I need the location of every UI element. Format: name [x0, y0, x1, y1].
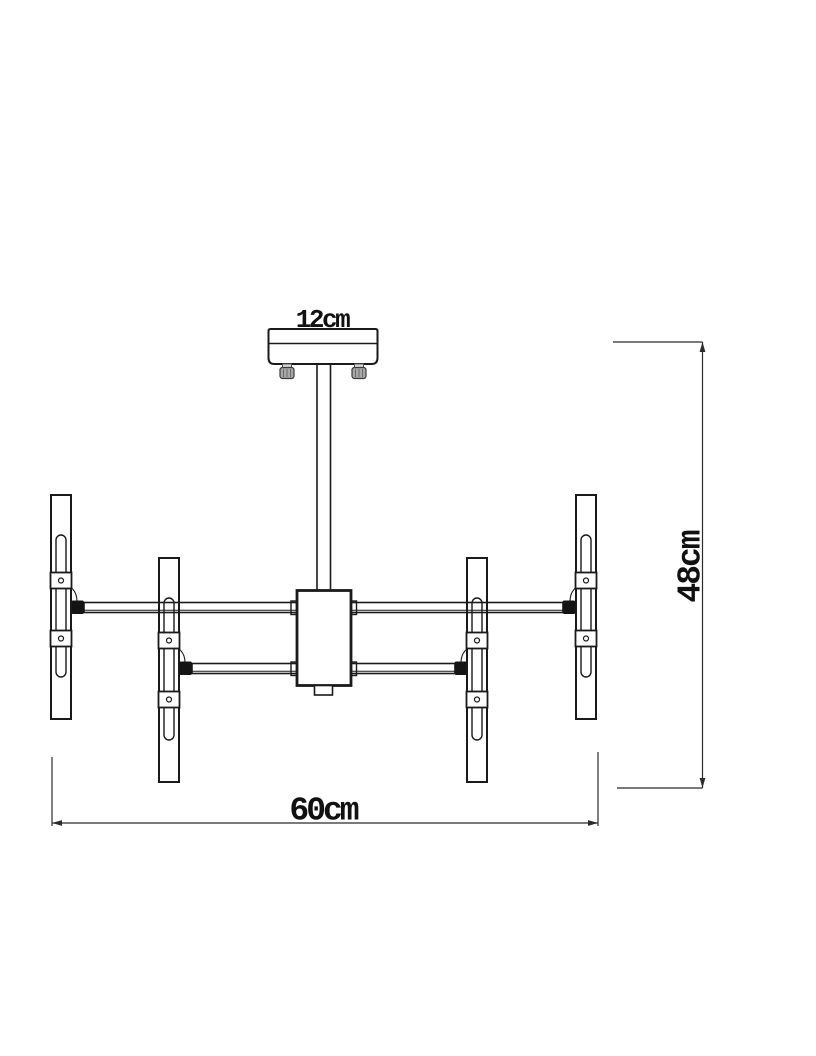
wire-connector-lower-right: [455, 662, 468, 676]
arrowhead-left: [52, 820, 62, 826]
tube-light-inner-right: [467, 558, 488, 782]
tube-glass: [581, 535, 591, 677]
mounting-screw-right: [352, 364, 366, 379]
tube-housing: [51, 495, 71, 719]
drawing-page: 48cm 60cm 12cm: [0, 0, 816, 1056]
arrowhead-right: [588, 820, 598, 826]
tube-clamp: [467, 692, 488, 708]
central-body-bottom-cap: [315, 686, 333, 696]
tube-glass: [472, 598, 482, 740]
tube-clamp: [159, 633, 180, 649]
tube-housing: [159, 558, 179, 782]
dimensions: 48cm 60cm 12cm: [52, 305, 710, 830]
tube-clamp: [159, 692, 180, 708]
tube-light-outer-left: [51, 495, 72, 719]
mounting-screw-left: [280, 364, 294, 379]
fixture: [51, 329, 597, 782]
tube-light-inner-left: [159, 558, 180, 782]
height-dimension: 48cm: [613, 342, 710, 788]
tube-clamp: [51, 631, 72, 647]
wire-connector-upper-right: [563, 601, 576, 615]
tube-housing: [576, 495, 596, 719]
tube-clamp: [51, 573, 72, 589]
arrowhead-down: [700, 778, 706, 788]
height-dimension-label: 48cm: [673, 530, 710, 602]
canopy-width-label: 12cm: [296, 305, 350, 335]
width-dimension: 60cm: [52, 752, 598, 830]
tube-glass: [56, 535, 66, 677]
arrowhead-up: [700, 342, 706, 352]
tube-glass: [164, 598, 174, 740]
wire-connector-upper-left: [71, 601, 84, 615]
central-body: [297, 591, 351, 686]
tube-light-outer-right: [576, 495, 597, 719]
tube-clamp: [467, 633, 488, 649]
tube-clamp: [576, 631, 597, 647]
hanging-rod: [317, 364, 331, 591]
wire-connector-lower-left: [179, 662, 192, 676]
width-dimension-label: 60cm: [289, 793, 358, 830]
tube-clamp: [576, 573, 597, 589]
chandelier-dimension-diagram: 48cm 60cm 12cm: [0, 0, 816, 1056]
tube-housing: [467, 558, 487, 782]
